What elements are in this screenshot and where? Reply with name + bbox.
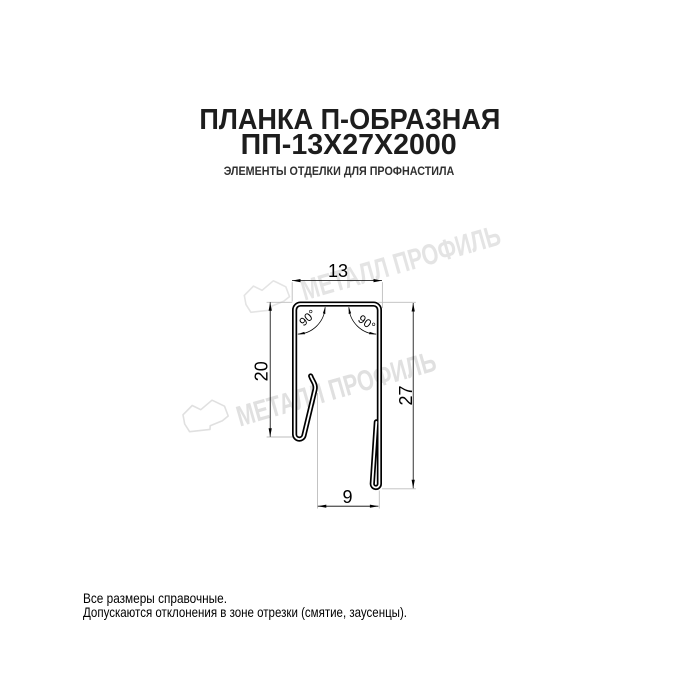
svg-text:13: 13 [328,261,348,281]
svg-text:27: 27 [396,385,416,405]
svg-text:ПП-13Х27Х2000: ПП-13Х27Х2000 [241,128,457,160]
svg-text:Допускаются отклонения в зоне: Допускаются отклонения в зоне отрезки (с… [83,605,407,620]
svg-text:Все размеры справочные.: Все размеры справочные. [83,591,227,606]
svg-text:9: 9 [342,487,352,507]
svg-text:ЭЛЕМЕНТЫ ОТДЕЛКИ ДЛЯ ПРОФНАСТИ: ЭЛЕМЕНТЫ ОТДЕЛКИ ДЛЯ ПРОФНАСТИЛА [224,164,455,178]
svg-text:20: 20 [251,361,271,381]
